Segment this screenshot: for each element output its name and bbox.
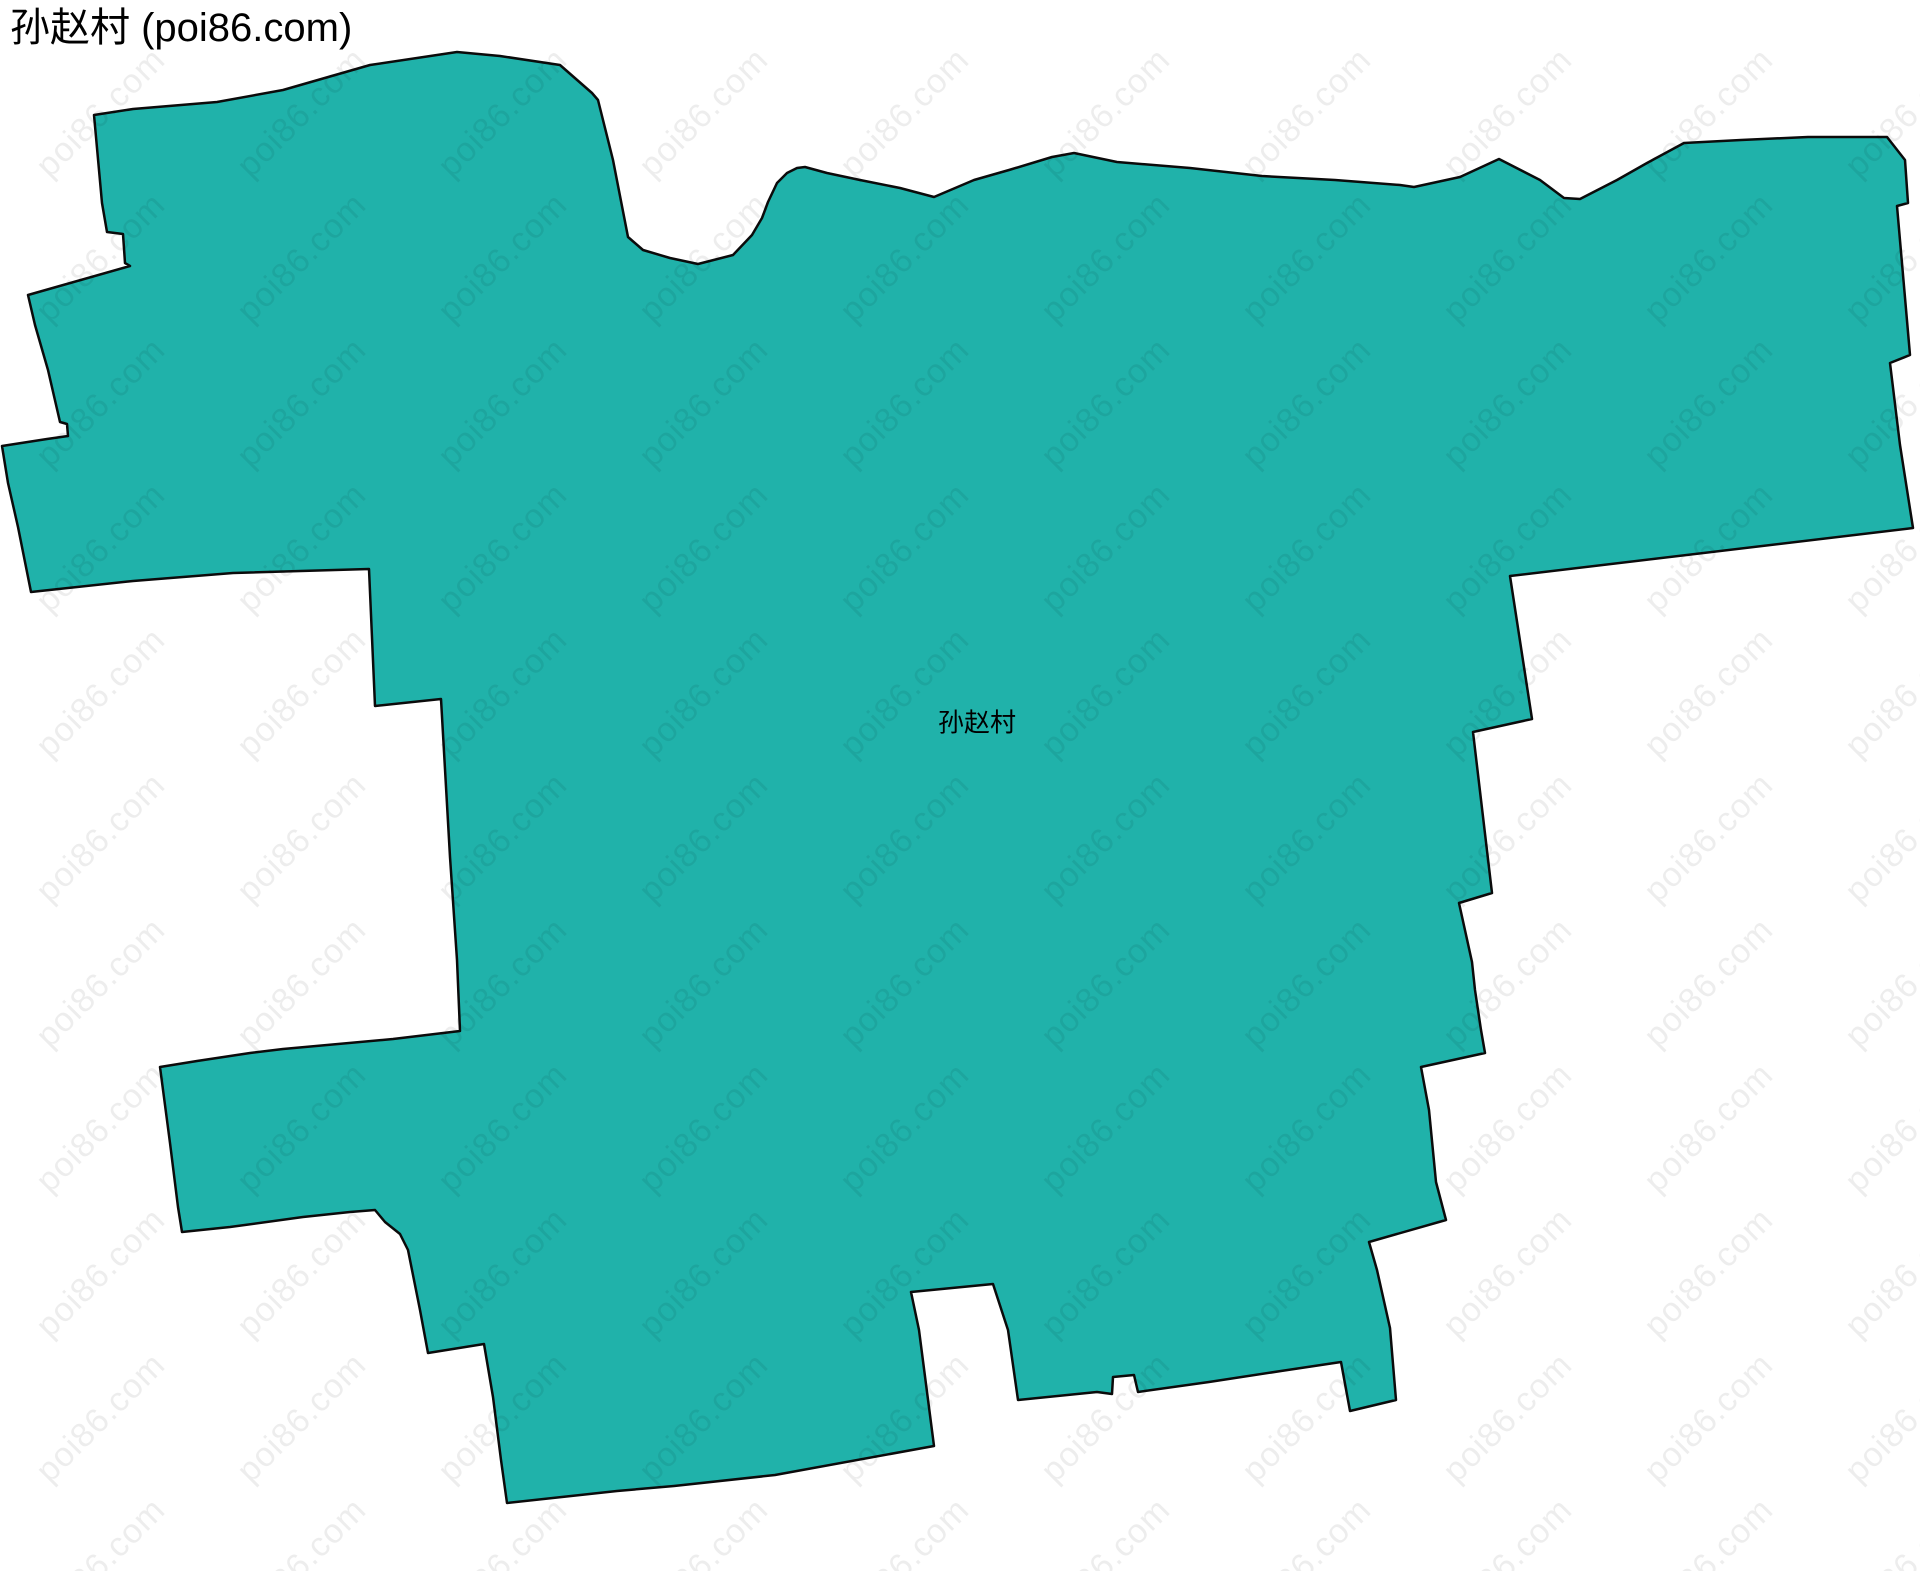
region-polygon	[2, 52, 1913, 1503]
region-map	[0, 0, 1920, 1571]
page-title: 孙赵村 (poi86.com)	[10, 4, 352, 52]
region-label: 孙赵村	[938, 703, 1016, 740]
map-page: poi86.compoi86.compoi86.compoi86.compoi8…	[0, 0, 1920, 1571]
